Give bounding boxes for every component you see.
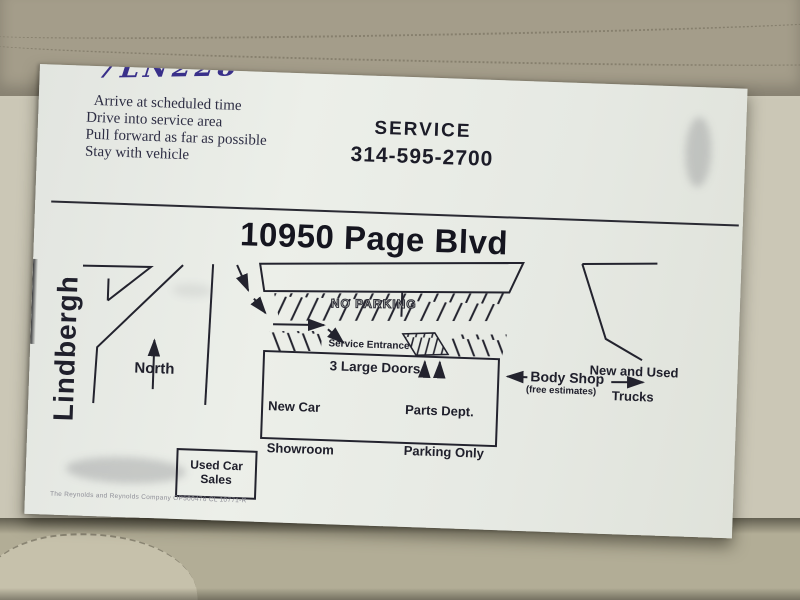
page-blvd-median-outline: [259, 254, 523, 300]
new-car-line2: Showroom: [266, 441, 334, 457]
building-top-hatch-right: [450, 333, 507, 359]
street-label-lindbergh: Lindbergh: [48, 271, 85, 422]
photo-of-service-card-on-seat: 7LN228 Arrive at scheduled time Drive in…: [0, 0, 800, 600]
road-line-right-diagonal: [579, 264, 645, 360]
trucks-arrow: [611, 381, 643, 383]
parts-dept-label: Parts Dept. Parking Only: [403, 376, 487, 487]
new-car-line1: New Car: [268, 399, 336, 415]
service-direction-card: 7LN228 Arrive at scheduled time Drive in…: [24, 64, 747, 538]
trucks-label-line2: Trucks: [612, 388, 654, 404]
no-parking-label: NO PARKING: [331, 296, 417, 311]
trucks-label-line1: New and Used: [589, 362, 678, 380]
parts-line1: Parts Dept.: [405, 403, 486, 419]
used-car-sales-label: Used Car Sales: [177, 457, 255, 488]
body-shop-arrow: [507, 377, 527, 378]
road-line-lindbergh-east: [205, 264, 213, 405]
three-large-doors-label: 3 Large Doors: [329, 358, 420, 376]
used-car-sales-box: Used Car Sales: [175, 448, 258, 500]
route-arrow-2: [253, 299, 265, 313]
road-line-left-tick: [108, 279, 109, 301]
road-line-right-top: [582, 261, 657, 267]
route-arrow-3: [273, 323, 324, 326]
seat-seam-crease: [0, 588, 800, 600]
road-line-left-merge: [82, 265, 151, 302]
parts-line2: Parking Only: [404, 443, 485, 459]
new-car-showroom-label: New Car Showroom: [266, 371, 337, 485]
route-arrow-1: [236, 265, 249, 290]
building-top-hatch-left: [269, 329, 322, 353]
seat-stitch-line: [0, 10, 800, 43]
north-label: North: [127, 359, 182, 378]
road-line-lindbergh-west: [93, 262, 183, 406]
seat-stitch-line: [0, 35, 800, 71]
